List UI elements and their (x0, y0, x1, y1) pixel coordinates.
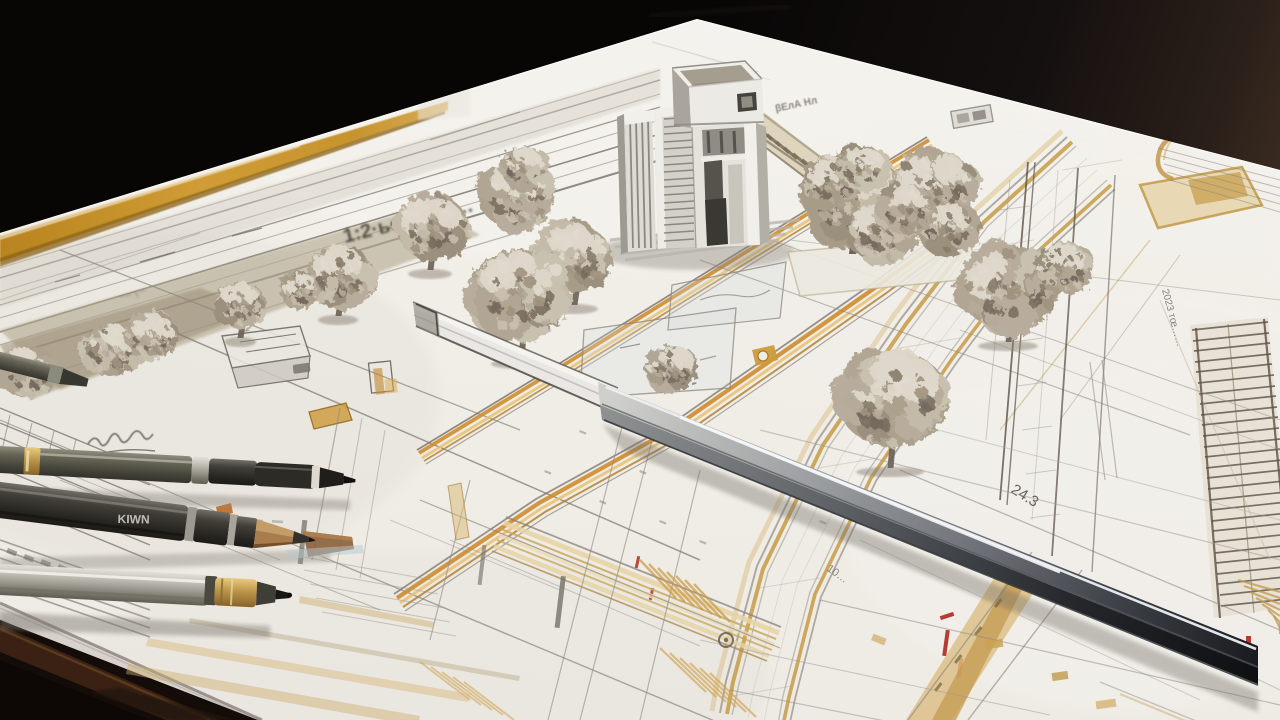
svg-text:KIWN: KIWN (117, 512, 149, 527)
